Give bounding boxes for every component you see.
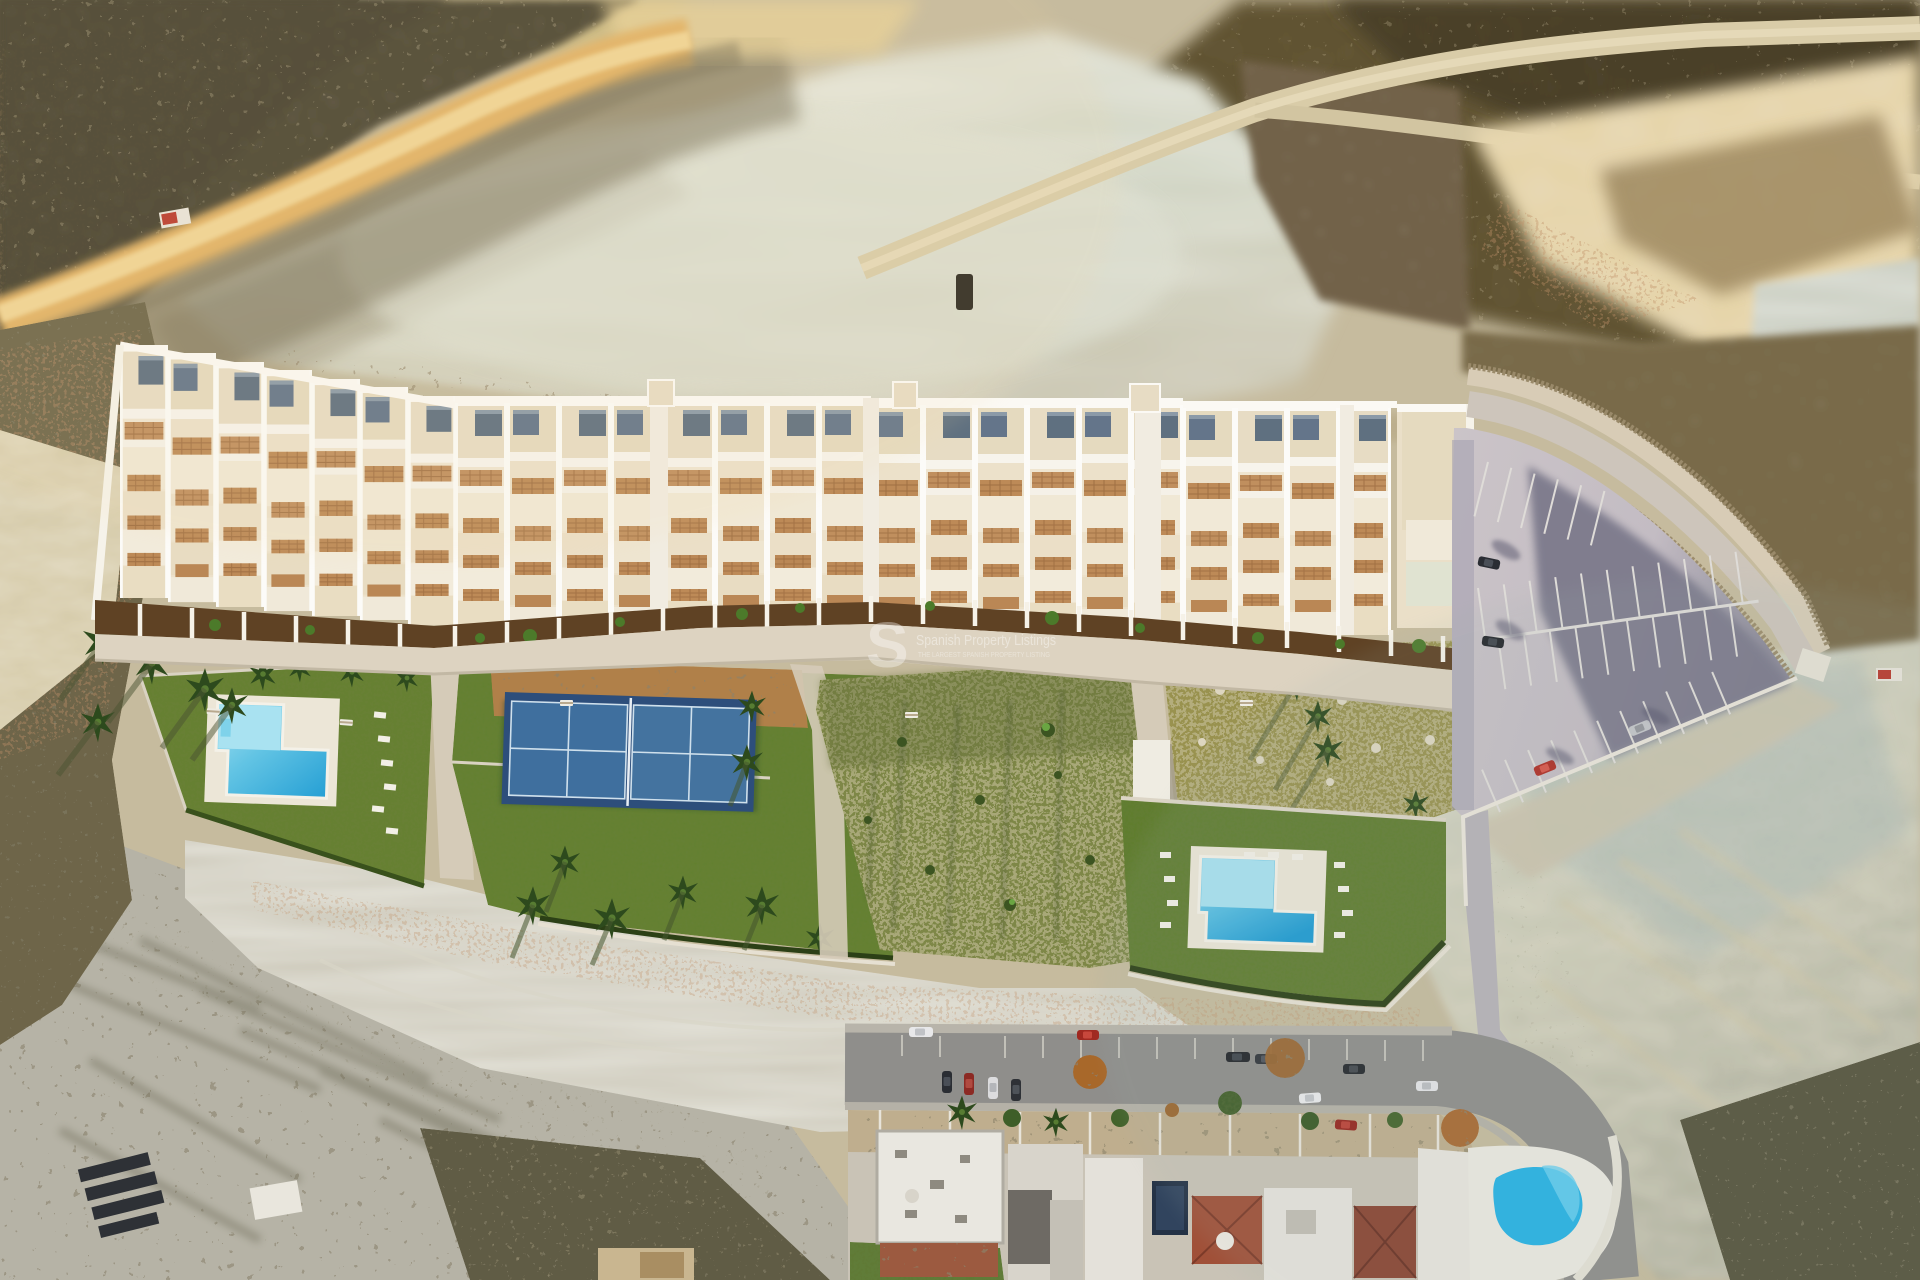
svg-text:S: S xyxy=(866,609,909,681)
svg-text:THE LARGEST SPANISH PROPERTY L: THE LARGEST SPANISH PROPERTY LISTING xyxy=(918,650,1050,659)
svg-text:Spanish Property Listings: Spanish Property Listings xyxy=(916,632,1056,649)
